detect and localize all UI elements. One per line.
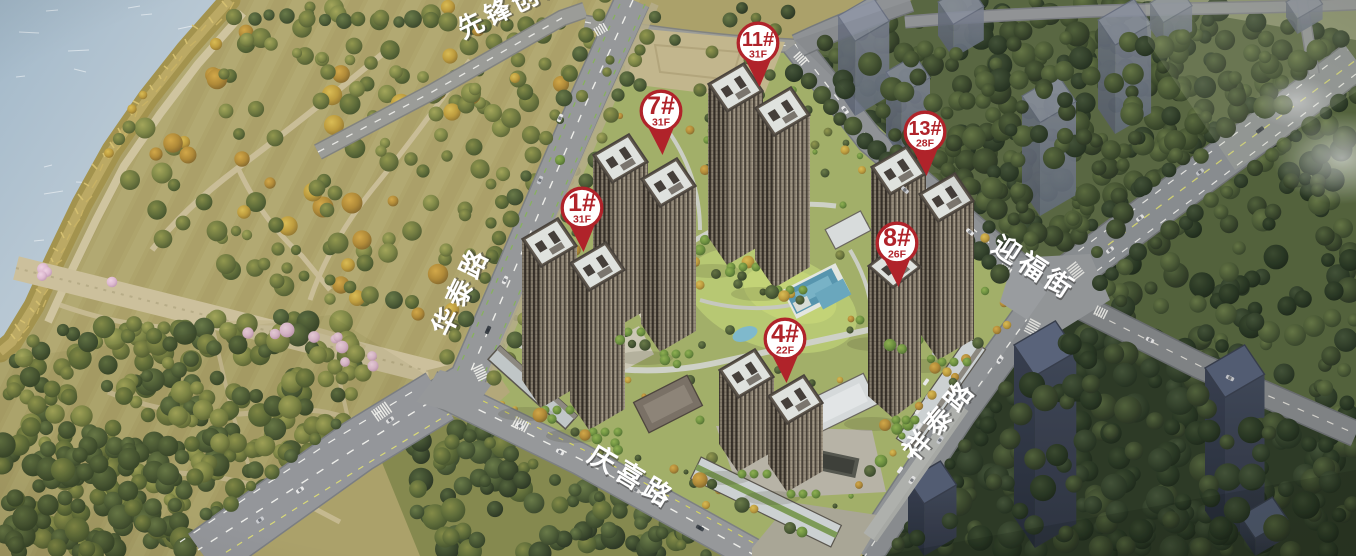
- svg-text:22F: 22F: [776, 345, 795, 357]
- svg-text:31F: 31F: [573, 214, 592, 226]
- svg-text:31F: 31F: [749, 49, 768, 61]
- svg-text:31F: 31F: [652, 117, 671, 129]
- svg-text:26F: 26F: [888, 249, 907, 261]
- svg-text:28F: 28F: [916, 138, 935, 150]
